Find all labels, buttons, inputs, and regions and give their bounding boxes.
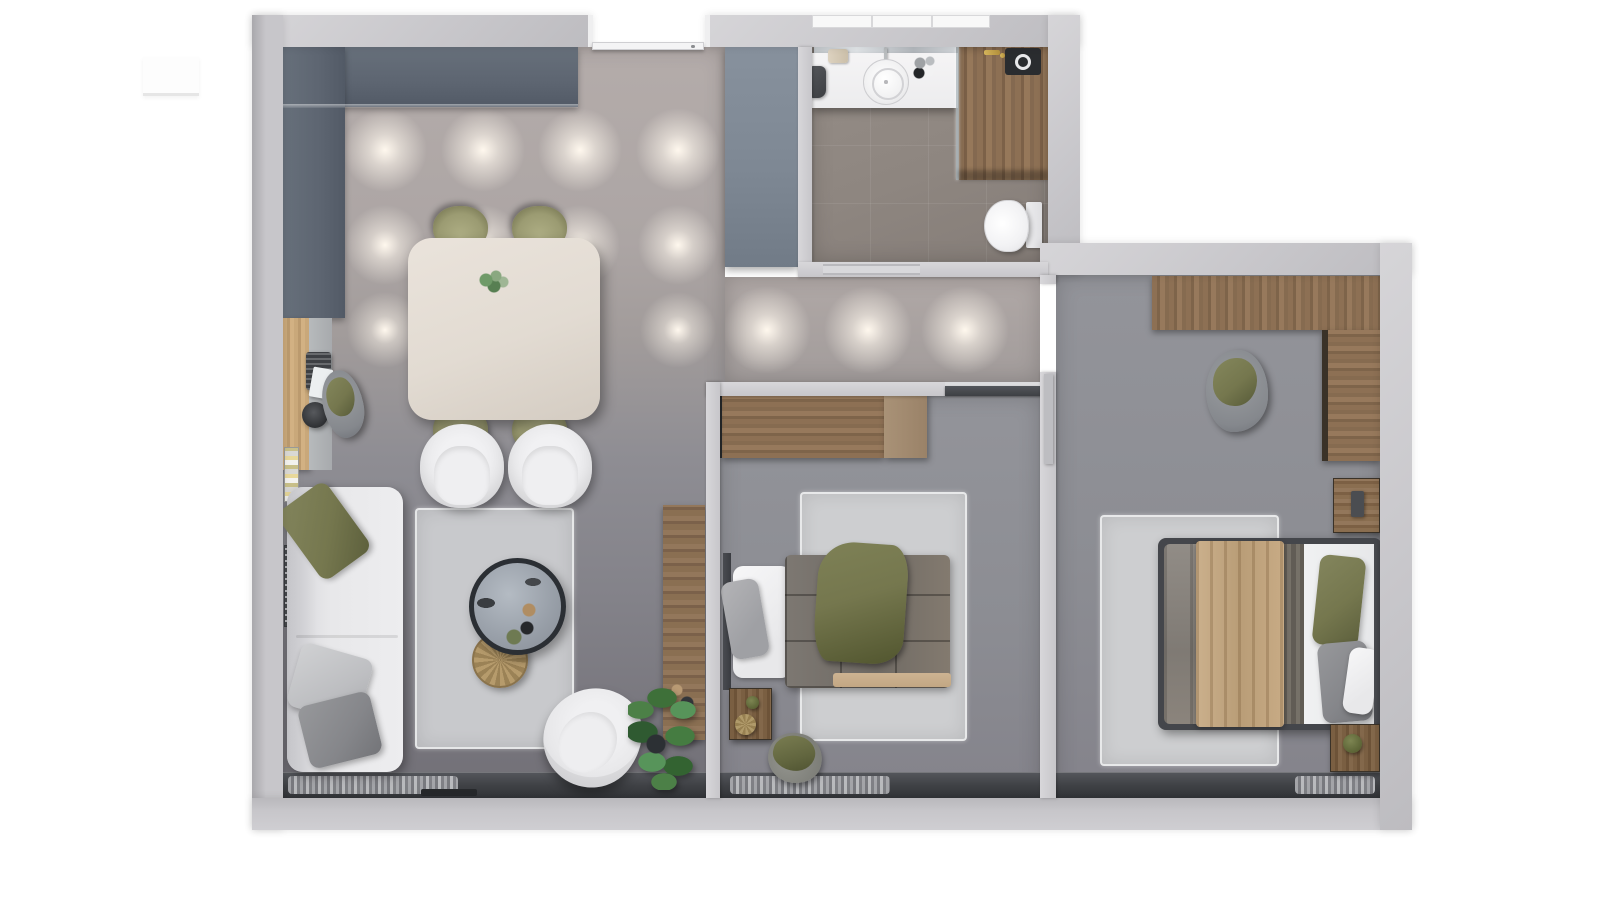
wall-corridor-upper (1040, 275, 1056, 284)
coffee-table-decor (469, 558, 566, 655)
dining-table (408, 238, 600, 420)
entry-wardrobe-panel (725, 47, 798, 267)
bean-bag-bedroom2 (1206, 350, 1268, 432)
bedroom2-curtain (1295, 776, 1375, 794)
bathroom-top-window (812, 15, 990, 28)
bedroom1-sliding-door (945, 386, 1042, 396)
wardrobe1-right-section (884, 392, 927, 458)
table-centerpiece-plant (470, 268, 514, 298)
monstera-plant (628, 686, 700, 790)
blank-card (143, 57, 199, 96)
outer-wall-bathroom-right (1048, 15, 1080, 275)
glass-divider (956, 47, 959, 180)
wall-bathroom-left (798, 47, 812, 262)
bed1-olive-throw (812, 540, 910, 666)
nightstand2-lamp (1351, 491, 1364, 517)
bathroom-sliding-door (823, 264, 920, 275)
bedroom2-door (1044, 374, 1053, 464)
washing-machine (1005, 48, 1041, 75)
wall-bedroom1-top (706, 382, 945, 396)
outer-wall-wing-top (1040, 243, 1412, 275)
round-sink (863, 59, 909, 105)
living-window-sill (421, 789, 477, 796)
floorplan-canvas (0, 0, 1600, 900)
outer-wall-left (252, 15, 283, 830)
wardrobe-bedroom1 (722, 392, 884, 458)
outer-wall-bottom (252, 798, 1412, 830)
wardrobe2-open-edge (1322, 330, 1328, 461)
wardrobe-bedroom2-top (1152, 276, 1380, 330)
wall-bedroom1-left (706, 382, 720, 798)
entry-door (592, 42, 704, 50)
cabinet-shadow (958, 170, 1048, 180)
armchair-right (508, 424, 592, 508)
outer-wall-right (1380, 243, 1412, 830)
bed1-foot-blanket (833, 673, 951, 687)
window-mullion (931, 16, 933, 27)
nightstand1-plant (746, 696, 759, 709)
entry-jamb-right (705, 15, 710, 47)
gold-fitting (984, 50, 1000, 55)
door-handle (691, 45, 695, 48)
outer-wall-top-left (252, 15, 592, 47)
floor-hallway (725, 277, 1040, 382)
window-mullion (871, 16, 873, 27)
armchair-left (420, 424, 504, 508)
bed2-tan-runner (1196, 541, 1284, 727)
cosmetic-bottles (913, 56, 937, 80)
wardrobe-bedroom2-right (1322, 330, 1380, 461)
toilet (984, 200, 1029, 252)
kitchen-counter-left (283, 47, 345, 318)
nightstand2b-plant (1343, 734, 1362, 753)
kitchen-counter-edge (283, 104, 578, 108)
bed2-pillow-olive (1311, 554, 1366, 648)
towel-dark (810, 66, 826, 98)
nightstand1-woven-ball (735, 714, 756, 735)
towel-beige (828, 49, 848, 63)
